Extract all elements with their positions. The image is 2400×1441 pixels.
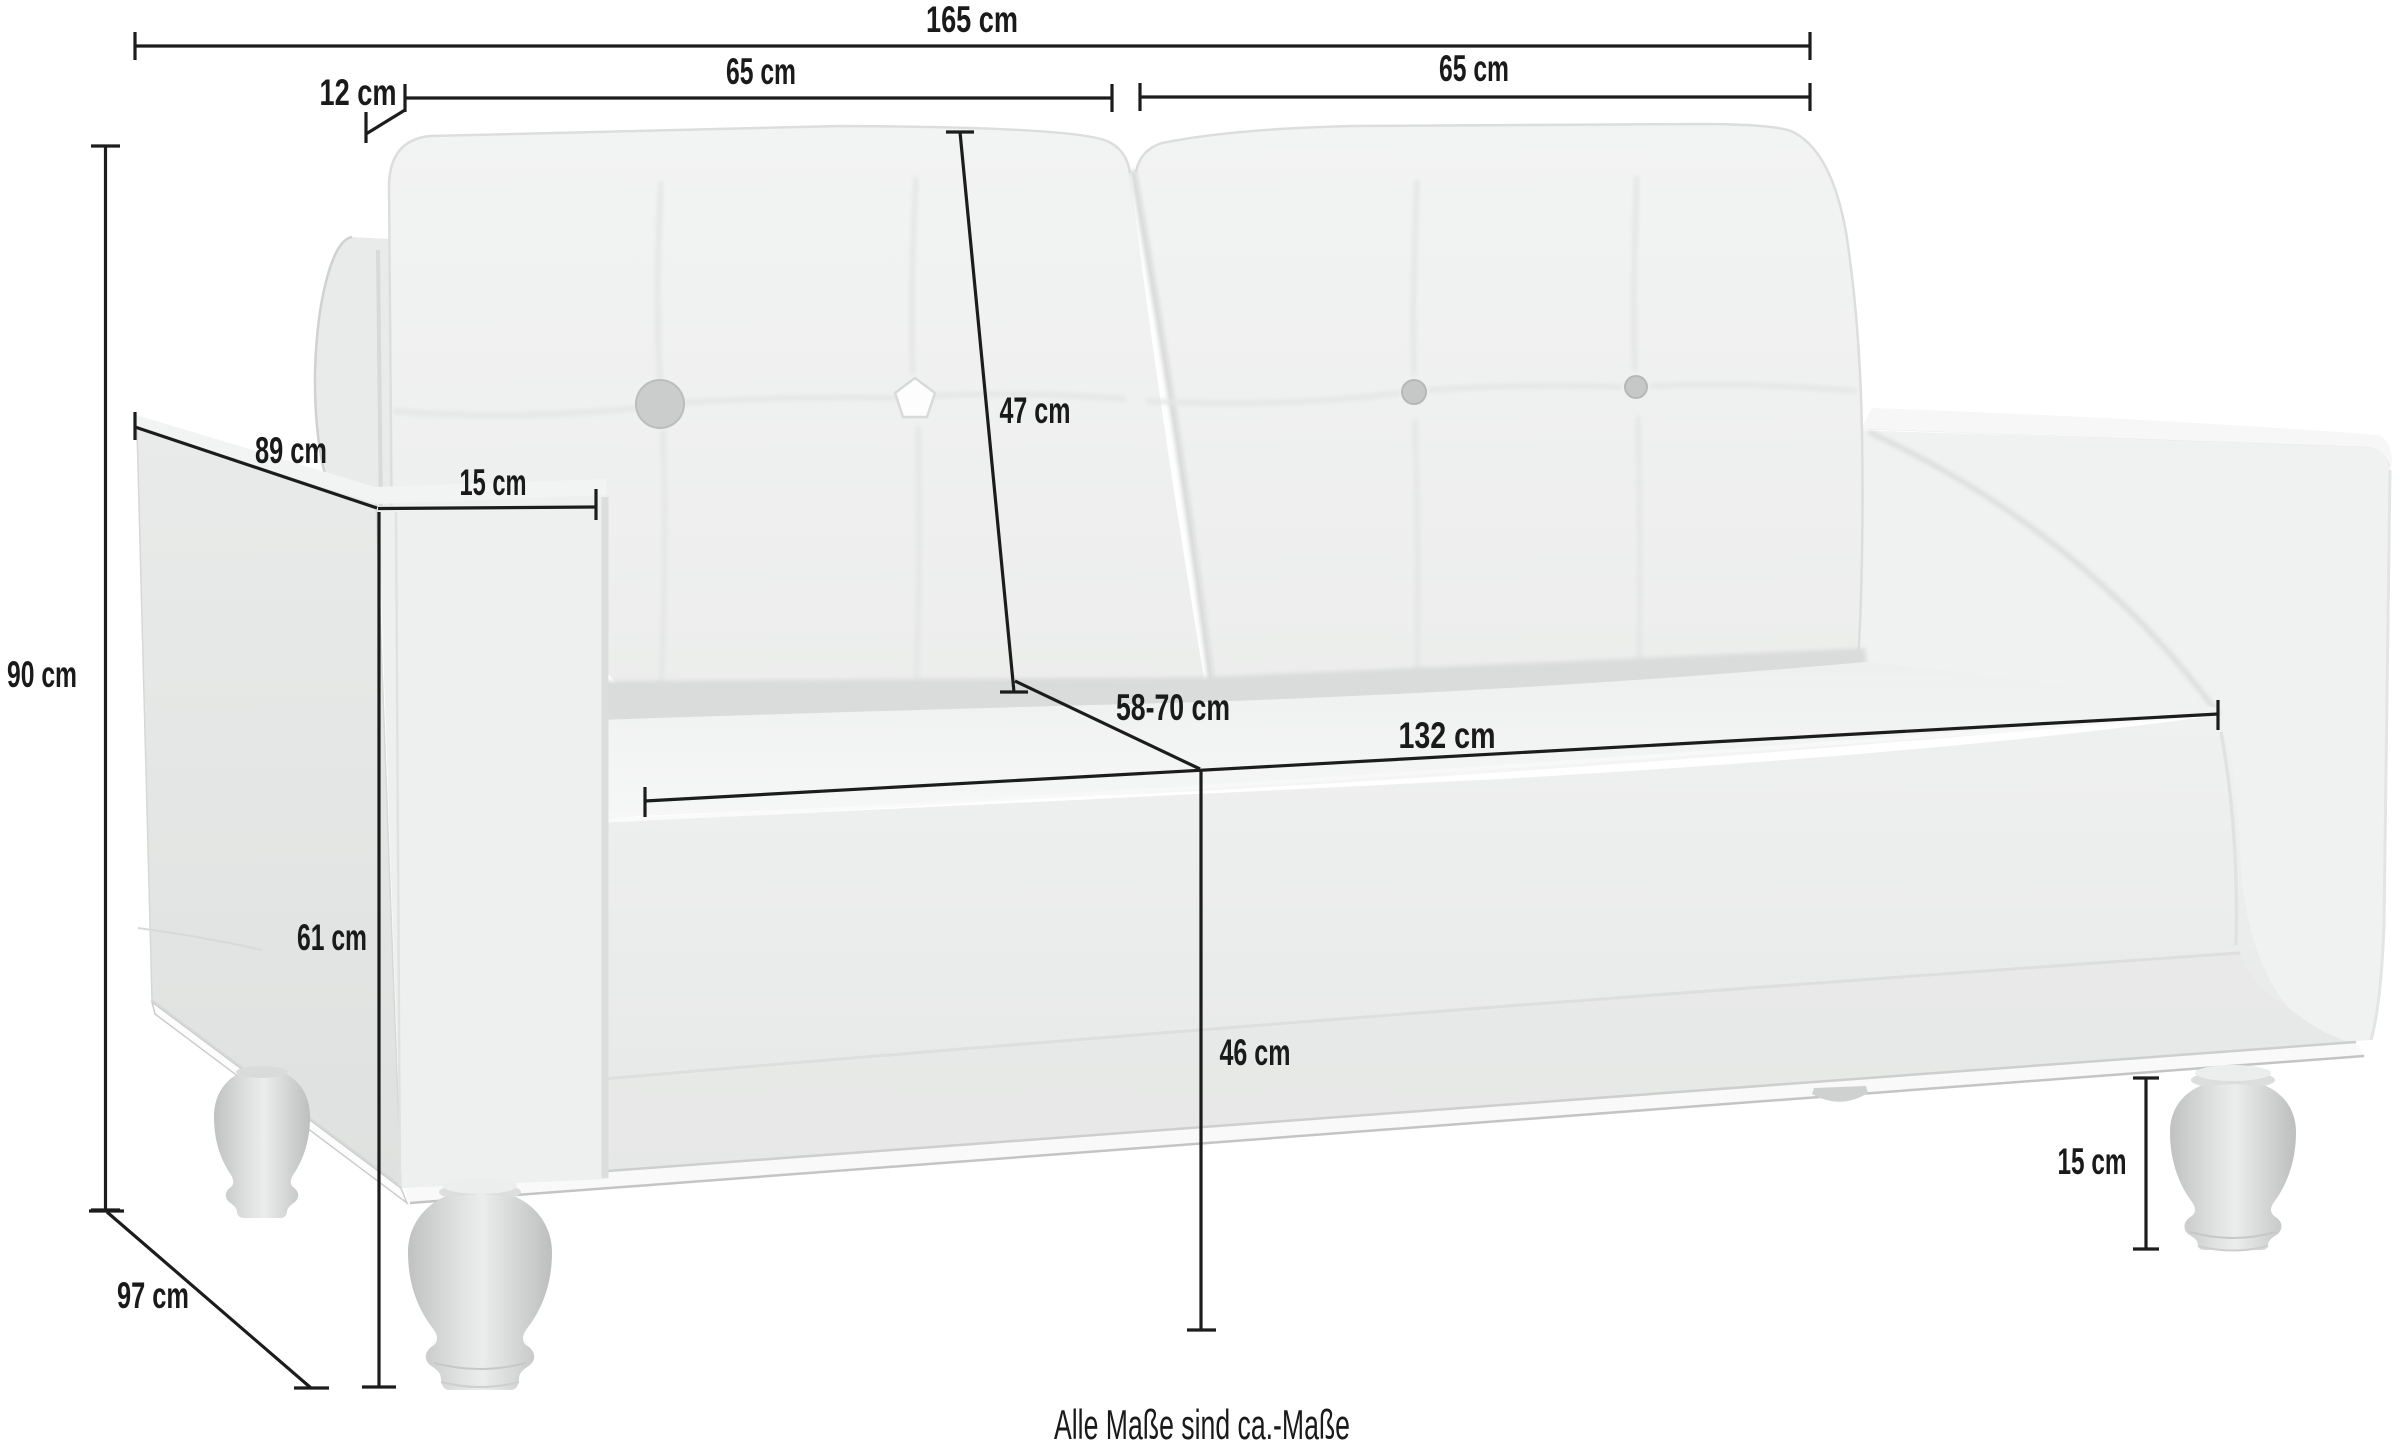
svg-text:Alle Maße sind ca.-Maße: Alle Maße sind ca.-Maße (1054, 1401, 1350, 1441)
svg-text:89 cm: 89 cm (255, 430, 327, 471)
svg-text:58-70 cm: 58-70 cm (1116, 687, 1230, 728)
svg-text:61 cm: 61 cm (297, 917, 367, 958)
svg-text:65 cm: 65 cm (1439, 48, 1509, 89)
svg-text:97 cm: 97 cm (117, 1275, 189, 1316)
svg-text:90 cm: 90 cm (7, 654, 77, 695)
svg-text:47 cm: 47 cm (1000, 390, 1071, 431)
svg-text:132 cm: 132 cm (1399, 715, 1496, 756)
svg-text:15 cm: 15 cm (460, 462, 527, 503)
svg-text:65 cm: 65 cm (726, 51, 796, 92)
svg-text:12 cm: 12 cm (320, 72, 397, 113)
svg-text:165 cm: 165 cm (926, 0, 1018, 40)
svg-text:46 cm: 46 cm (1220, 1032, 1291, 1073)
svg-text:15 cm: 15 cm (2058, 1141, 2127, 1182)
